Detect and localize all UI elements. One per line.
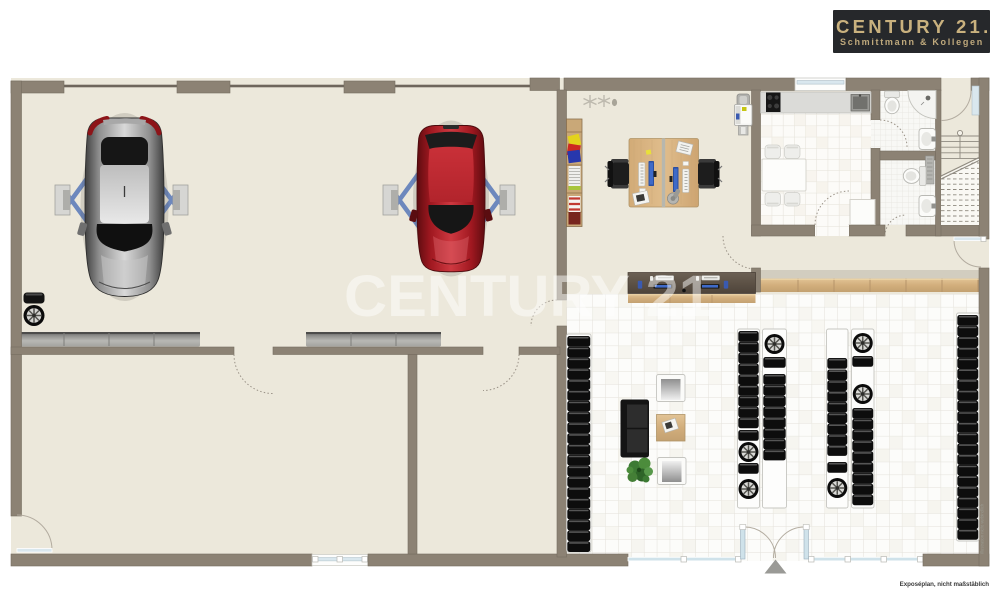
svg-text:Illustration nicht verbindlich: Illustration nicht verbindlich: [980, 503, 985, 554]
svg-text:CENTURY 21: CENTURY 21: [344, 264, 712, 329]
